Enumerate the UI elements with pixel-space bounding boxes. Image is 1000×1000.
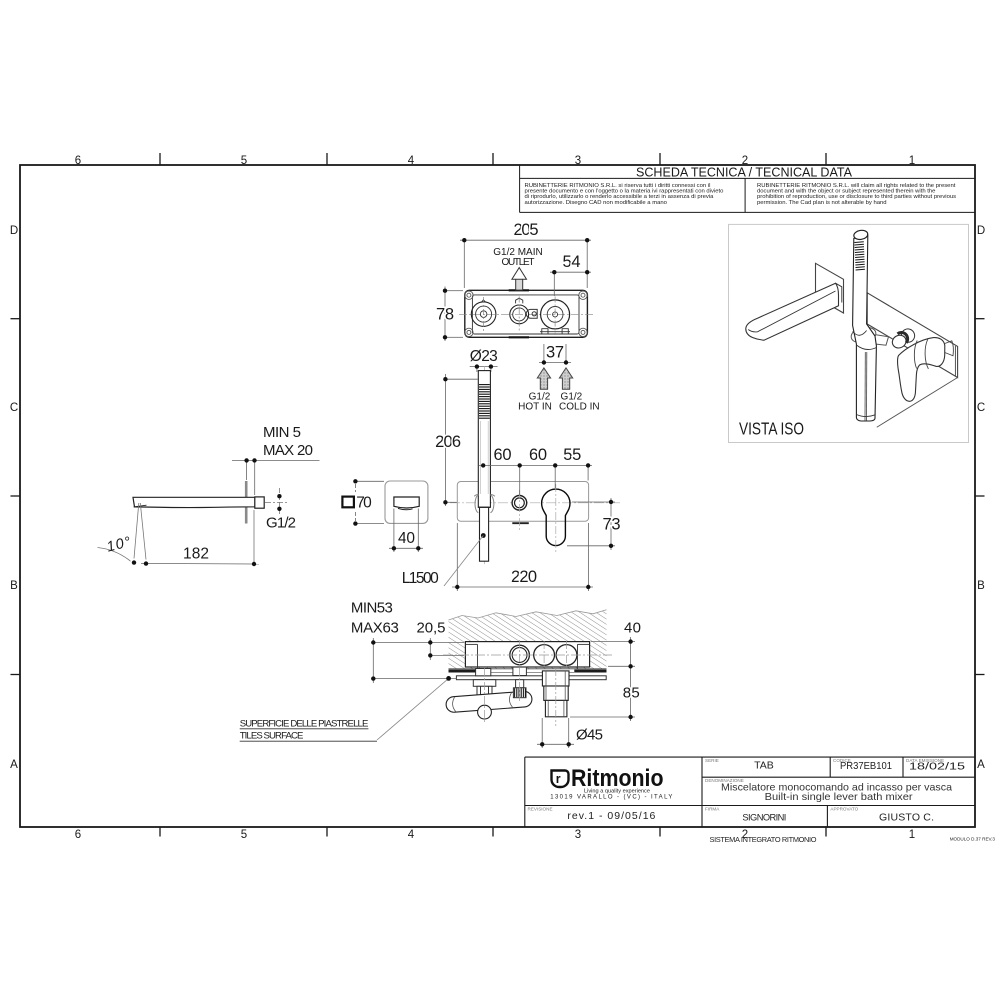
svg-text:6: 6 (75, 155, 81, 167)
svg-text:60: 60 (529, 446, 547, 464)
svg-text:MAX 20: MAX 20 (263, 442, 313, 459)
svg-text:37: 37 (546, 344, 564, 362)
svg-text:C: C (10, 402, 18, 414)
svg-text:Ø23: Ø23 (470, 348, 498, 365)
svg-text:4: 4 (408, 155, 415, 167)
svg-text:D: D (977, 225, 985, 237)
svg-text:MIN 5: MIN 5 (263, 424, 301, 441)
svg-text:13019 VARALLO - (VC) - ITALY: 13019 VARALLO - (VC) - ITALY (550, 795, 674, 801)
svg-text:6: 6 (75, 829, 81, 841)
svg-text:Living a quality experience: Living a quality experience (584, 788, 650, 794)
svg-text:SISTEMA INTEGRATO RITMONIO: SISTEMA INTEGRATO RITMONIO (710, 835, 817, 844)
svg-text:SUPERFICIE DELLE PIASTRELLE: SUPERFICIE DELLE PIASTRELLE (240, 718, 369, 729)
svg-text:73: 73 (603, 516, 621, 534)
svg-text:A: A (10, 759, 18, 771)
svg-text:220: 220 (511, 568, 537, 586)
svg-text:70: 70 (356, 494, 372, 511)
svg-text:TAB: TAB (754, 760, 774, 772)
svg-text:OUTLET: OUTLET (502, 257, 535, 268)
svg-text:MIN53: MIN53 (351, 600, 393, 617)
svg-text:85: 85 (623, 684, 640, 701)
svg-text:B: B (10, 580, 18, 592)
svg-text:18/02/15: 18/02/15 (909, 760, 965, 772)
svg-text:4: 4 (408, 829, 415, 841)
svg-text:MODULO D.37 REV.3: MODULO D.37 REV.3 (950, 837, 996, 842)
svg-text:40: 40 (398, 530, 415, 547)
svg-text:40: 40 (624, 620, 641, 637)
svg-text:60: 60 (494, 446, 512, 464)
svg-text:HOT IN: HOT IN (518, 402, 552, 413)
svg-text:rev.1 - 09/05/16: rev.1 - 09/05/16 (567, 810, 655, 822)
svg-text:5: 5 (241, 155, 247, 167)
svg-text:SERIE: SERIE (705, 758, 719, 763)
svg-text:54: 54 (563, 253, 581, 271)
svg-text:COLD IN: COLD IN (559, 402, 600, 413)
svg-text:3: 3 (575, 829, 581, 841)
svg-text:Ø45: Ø45 (576, 727, 603, 744)
svg-text:5: 5 (241, 829, 247, 841)
svg-text:205: 205 (514, 221, 539, 239)
svg-text:20,5: 20,5 (417, 620, 446, 637)
svg-text:PR37EB101: PR37EB101 (840, 760, 892, 772)
svg-text:182: 182 (183, 546, 209, 563)
svg-text:MAX63: MAX63 (351, 620, 399, 637)
svg-text:1: 1 (909, 829, 915, 841)
svg-text:1: 1 (909, 155, 915, 167)
svg-text:B: B (977, 580, 985, 592)
svg-text:78: 78 (436, 306, 454, 324)
svg-text:G1/2: G1/2 (266, 515, 296, 532)
svg-text:A: A (977, 759, 985, 771)
svg-text:Built-in single lever bath: Built-in single lever bath mixer (765, 791, 914, 803)
svg-text:FIRMA: FIRMA (705, 806, 720, 811)
svg-text:SCHEDA TECNICA / TECNICAL DATA: SCHEDA TECNICA / TECNICAL DATA (636, 165, 852, 180)
svg-text:APPROVATO: APPROVATO (830, 806, 858, 811)
svg-text:permission. The Cad plan is n: permission. The Cad plan is not alterabl… (757, 200, 887, 206)
svg-text:REVISIONE: REVISIONE (528, 806, 553, 811)
svg-text:GIUSTO C.: GIUSTO C. (879, 812, 934, 824)
svg-text:D: D (10, 225, 18, 237)
svg-text:L1500: L1500 (402, 570, 439, 587)
svg-text:r: r (556, 772, 561, 786)
svg-text:55: 55 (563, 446, 581, 464)
svg-text:206: 206 (435, 433, 461, 451)
svg-text:autorizzazione. Disegno CAD n: autorizzazione. Disegno CAD non modifica… (525, 200, 668, 206)
svg-text:TILES SURFACE: TILES SURFACE (240, 731, 304, 742)
svg-text:SIGNORINI: SIGNORINI (742, 812, 786, 822)
svg-text:VISTA ISO: VISTA ISO (739, 419, 804, 439)
svg-text:C: C (977, 402, 985, 414)
svg-text:3: 3 (575, 155, 581, 167)
